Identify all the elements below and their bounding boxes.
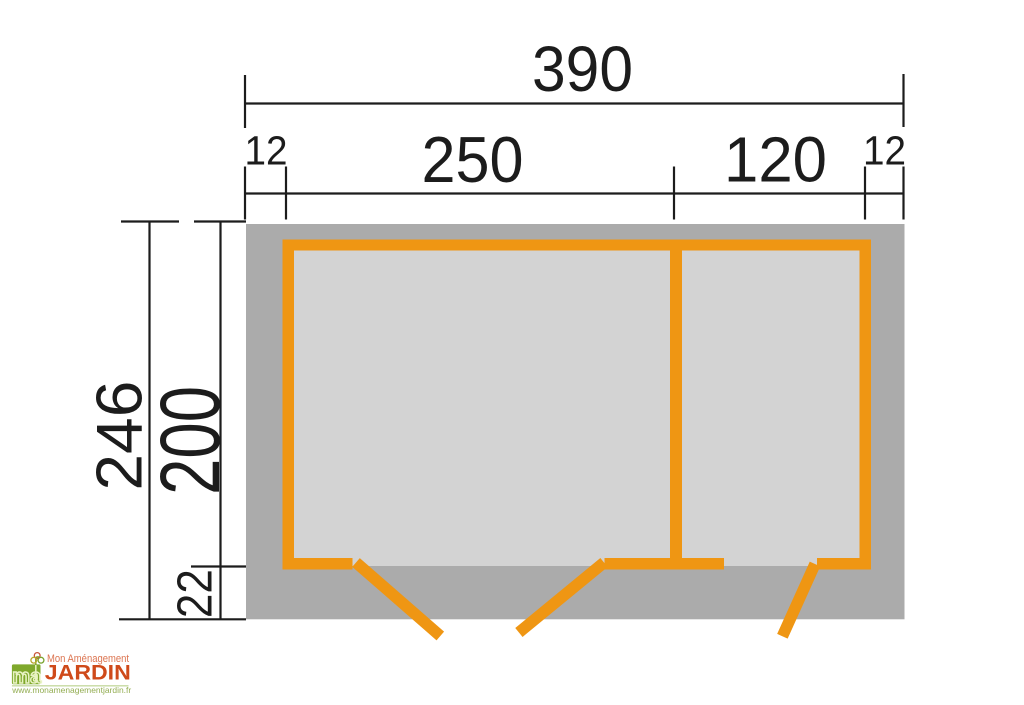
svg-text:12: 12 xyxy=(245,127,288,173)
svg-text:200: 200 xyxy=(143,386,237,495)
svg-text:12: 12 xyxy=(863,127,906,173)
svg-text:120: 120 xyxy=(724,124,827,196)
svg-text:JARDIN: JARDIN xyxy=(45,661,131,685)
svg-text:www.monamenagementjardin.fr: www.monamenagementjardin.fr xyxy=(11,685,131,695)
svg-text:250: 250 xyxy=(422,123,524,196)
svg-text:390: 390 xyxy=(532,33,633,105)
svg-text:22: 22 xyxy=(168,569,222,618)
